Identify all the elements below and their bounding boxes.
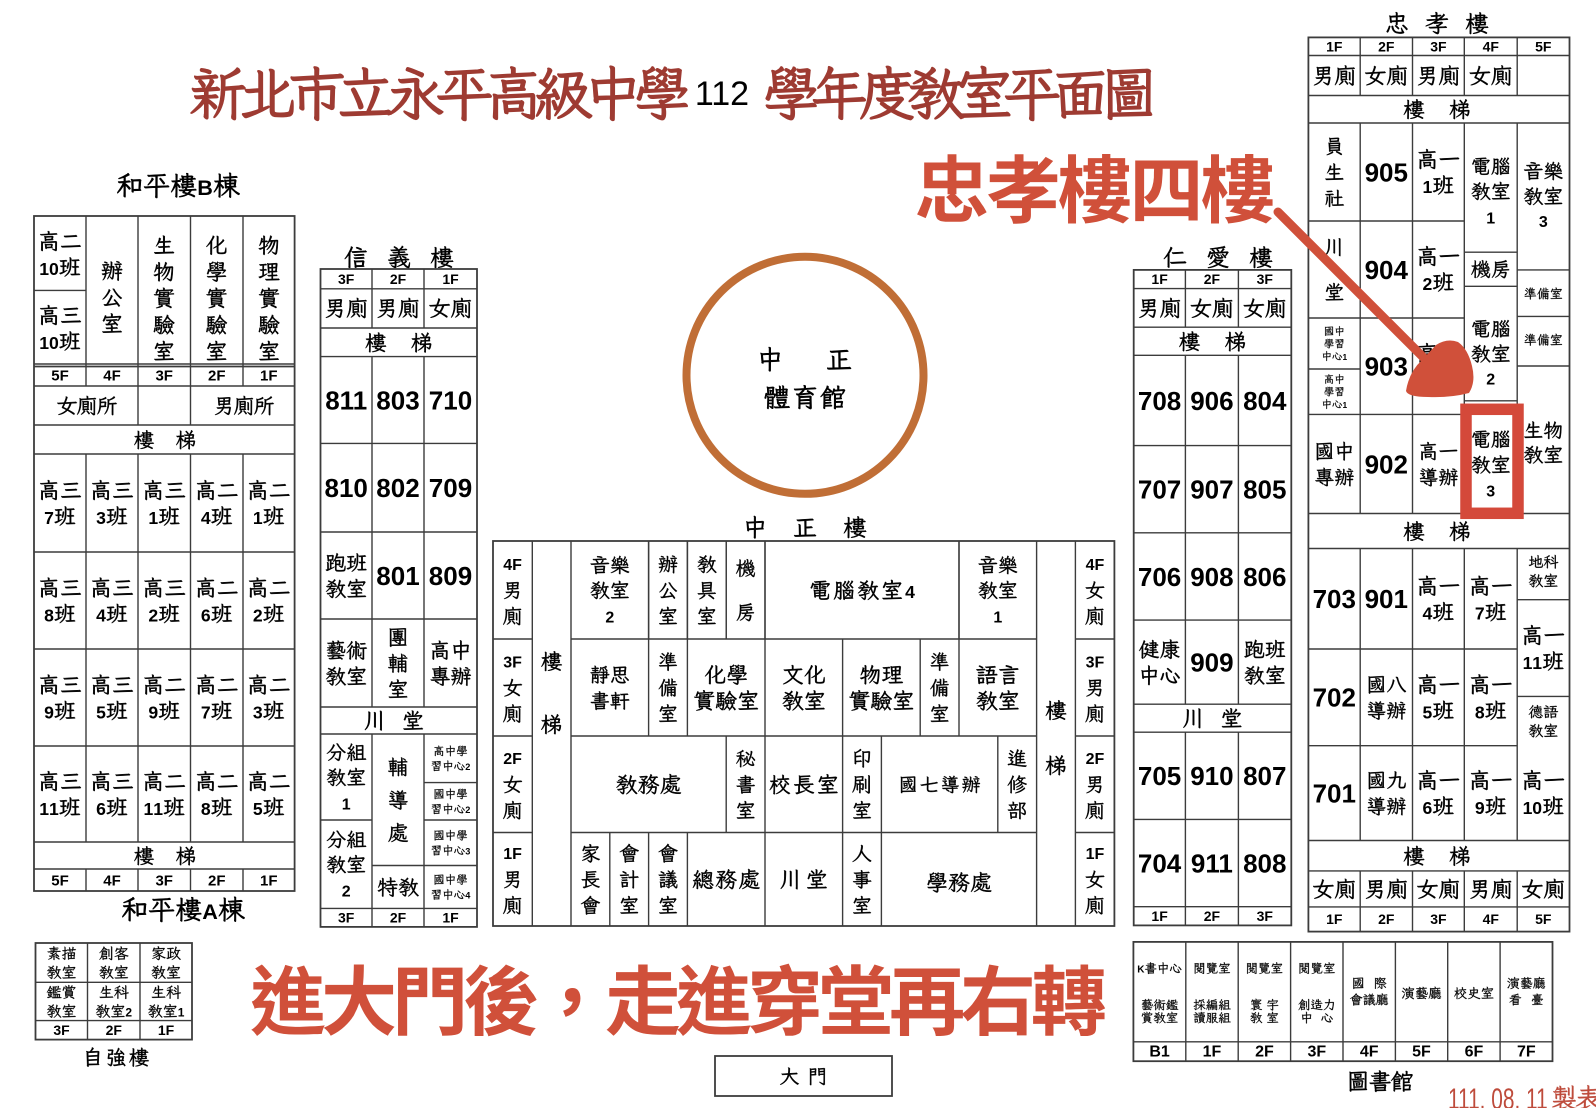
svg-text:1: 1 xyxy=(144,799,154,819)
svg-text:0: 0 xyxy=(49,333,59,353)
svg-text:1: 1 xyxy=(153,799,163,819)
svg-text:4: 4 xyxy=(465,891,471,901)
svg-text:1: 1 xyxy=(1343,400,1348,410)
svg-text:1: 1 xyxy=(49,799,59,819)
svg-text:4: 4 xyxy=(1423,604,1433,624)
svg-text:809: 809 xyxy=(429,561,472,591)
svg-text:2F: 2F xyxy=(1204,908,1221,924)
svg-text:2F: 2F xyxy=(503,751,522,768)
svg-text:1F: 1F xyxy=(1326,39,1343,55)
svg-text:5F: 5F xyxy=(51,367,69,384)
svg-text:903: 903 xyxy=(1365,352,1408,382)
svg-text:1F: 1F xyxy=(1326,911,1343,927)
svg-text:2F: 2F xyxy=(390,910,407,926)
svg-text:3F: 3F xyxy=(503,654,522,671)
svg-text:2: 2 xyxy=(605,609,614,626)
svg-text:705: 705 xyxy=(1138,761,1181,791)
svg-text:5F: 5F xyxy=(1412,1044,1431,1061)
svg-text:1: 1 xyxy=(178,1005,185,1019)
svg-text:910: 910 xyxy=(1190,761,1233,791)
svg-text:2: 2 xyxy=(1423,274,1433,294)
svg-text:2: 2 xyxy=(148,606,158,626)
svg-text:7: 7 xyxy=(44,508,54,528)
svg-text:4F: 4F xyxy=(1360,1044,1379,1061)
svg-text:1: 1 xyxy=(39,333,49,353)
svg-text:909: 909 xyxy=(1190,648,1233,678)
svg-text:2F: 2F xyxy=(390,271,407,287)
svg-text:3F: 3F xyxy=(155,872,173,889)
svg-text:902: 902 xyxy=(1365,449,1408,479)
svg-text:3F: 3F xyxy=(1430,39,1447,55)
svg-text:804: 804 xyxy=(1243,386,1287,416)
svg-text:1F: 1F xyxy=(260,367,278,384)
svg-text:2: 2 xyxy=(465,805,470,815)
svg-text:1F: 1F xyxy=(442,271,459,287)
svg-text:0: 0 xyxy=(1532,798,1542,818)
svg-text:907: 907 xyxy=(1190,475,1233,505)
svg-text:1F: 1F xyxy=(1151,271,1168,287)
svg-text:7: 7 xyxy=(1475,604,1485,624)
svg-text:707: 707 xyxy=(1138,475,1181,505)
svg-text:6F: 6F xyxy=(1465,1044,1484,1061)
svg-text:3F: 3F xyxy=(1257,908,1274,924)
svg-text:2: 2 xyxy=(465,762,470,772)
svg-text:1F: 1F xyxy=(1151,908,1168,924)
svg-text:706: 706 xyxy=(1138,562,1181,592)
svg-text:3F: 3F xyxy=(1430,911,1447,927)
svg-text:2F: 2F xyxy=(106,1022,123,1038)
svg-text:1: 1 xyxy=(1532,653,1542,673)
svg-text:2: 2 xyxy=(253,606,263,626)
svg-text:2F: 2F xyxy=(208,872,226,889)
svg-text:1: 1 xyxy=(1523,798,1533,818)
svg-text:801: 801 xyxy=(376,561,419,591)
svg-text:906: 906 xyxy=(1190,386,1233,416)
svg-text:709: 709 xyxy=(429,473,472,503)
svg-text:2: 2 xyxy=(342,884,351,901)
svg-text:1F: 1F xyxy=(158,1022,175,1038)
svg-text:904: 904 xyxy=(1365,255,1409,285)
svg-text:2: 2 xyxy=(125,1005,132,1019)
svg-text:2: 2 xyxy=(1486,371,1495,388)
svg-text:803: 803 xyxy=(376,385,419,415)
svg-text:8: 8 xyxy=(44,606,54,626)
svg-text:9: 9 xyxy=(44,703,54,723)
svg-text:4F: 4F xyxy=(503,557,522,574)
svg-text:1: 1 xyxy=(993,609,1002,626)
svg-text:5: 5 xyxy=(253,799,263,819)
svg-text:A: A xyxy=(202,899,218,924)
svg-text:806: 806 xyxy=(1243,562,1286,592)
svg-text:701: 701 xyxy=(1313,778,1356,808)
svg-text:8: 8 xyxy=(1475,702,1485,722)
svg-text:4F: 4F xyxy=(1483,39,1500,55)
svg-text:1: 1 xyxy=(1343,352,1348,362)
svg-text:112: 112 xyxy=(695,75,749,113)
svg-text:1: 1 xyxy=(1523,653,1533,673)
svg-text:4F: 4F xyxy=(103,367,121,384)
svg-text:9: 9 xyxy=(1475,798,1485,818)
svg-text:4F: 4F xyxy=(103,872,121,889)
svg-text:1F: 1F xyxy=(260,872,278,889)
svg-text:2F: 2F xyxy=(1255,1044,1274,1061)
svg-text:4F: 4F xyxy=(1086,557,1105,574)
svg-text:3F: 3F xyxy=(1307,1044,1326,1061)
svg-text:807: 807 xyxy=(1243,761,1286,791)
svg-text:9: 9 xyxy=(148,703,158,723)
svg-text:6: 6 xyxy=(201,606,211,626)
svg-text:7: 7 xyxy=(201,703,211,723)
svg-text:905: 905 xyxy=(1365,157,1408,187)
svg-text:703: 703 xyxy=(1313,584,1356,614)
svg-text:5F: 5F xyxy=(1535,39,1552,55)
svg-text:3F: 3F xyxy=(155,367,173,384)
svg-text:K: K xyxy=(1137,965,1145,976)
svg-text:2F: 2F xyxy=(208,367,226,384)
svg-text:3F: 3F xyxy=(1257,271,1274,287)
svg-text:901: 901 xyxy=(1365,584,1408,614)
svg-text:3: 3 xyxy=(96,508,106,528)
svg-text:1F: 1F xyxy=(1086,846,1105,863)
svg-text:1F: 1F xyxy=(1203,1044,1222,1061)
svg-text:6: 6 xyxy=(1423,798,1433,818)
svg-text:811: 811 xyxy=(325,385,367,415)
svg-text:911: 911 xyxy=(1191,848,1233,878)
svg-text:4: 4 xyxy=(96,606,106,626)
svg-text:3: 3 xyxy=(465,846,470,856)
svg-text:805: 805 xyxy=(1243,475,1286,505)
svg-text:3F: 3F xyxy=(1086,654,1105,671)
svg-text:8: 8 xyxy=(201,799,211,819)
svg-text:908: 908 xyxy=(1190,562,1233,592)
svg-text:2F: 2F xyxy=(1378,39,1395,55)
svg-text:4F: 4F xyxy=(1483,911,1500,927)
svg-text:1: 1 xyxy=(1486,210,1495,227)
svg-text:708: 708 xyxy=(1138,386,1181,416)
svg-text:1F: 1F xyxy=(442,910,459,926)
svg-text:B: B xyxy=(197,175,213,200)
svg-text:2F: 2F xyxy=(1086,751,1105,768)
svg-text:6: 6 xyxy=(96,799,106,819)
svg-text:3: 3 xyxy=(253,703,263,723)
svg-text:1: 1 xyxy=(253,508,263,528)
svg-text:810: 810 xyxy=(325,473,368,503)
svg-text:1: 1 xyxy=(39,259,49,279)
svg-text:1: 1 xyxy=(148,508,158,528)
svg-text:5: 5 xyxy=(1423,702,1433,722)
svg-text:111. 08. 11: 111. 08. 11 xyxy=(1448,1083,1548,1108)
svg-text:1: 1 xyxy=(39,799,49,819)
svg-text:808: 808 xyxy=(1243,848,1286,878)
svg-text:5: 5 xyxy=(96,703,106,723)
svg-text:2F: 2F xyxy=(1204,271,1221,287)
svg-text:4: 4 xyxy=(201,508,211,528)
svg-text:1: 1 xyxy=(1423,177,1433,197)
svg-text:710: 710 xyxy=(429,385,472,415)
svg-text:5F: 5F xyxy=(1535,911,1552,927)
svg-text:B1: B1 xyxy=(1149,1044,1170,1061)
svg-text:1: 1 xyxy=(342,796,351,813)
svg-text:7F: 7F xyxy=(1517,1044,1536,1061)
svg-text:702: 702 xyxy=(1313,683,1356,713)
svg-text:3F: 3F xyxy=(338,910,355,926)
svg-text:4: 4 xyxy=(905,582,915,602)
svg-text:3F: 3F xyxy=(53,1022,70,1038)
svg-text:3: 3 xyxy=(1486,483,1495,500)
svg-text:2F: 2F xyxy=(1378,911,1395,927)
svg-text:0: 0 xyxy=(49,259,59,279)
svg-text:5F: 5F xyxy=(51,872,69,889)
svg-text:802: 802 xyxy=(376,473,419,503)
svg-text:1F: 1F xyxy=(503,846,522,863)
svg-text:3F: 3F xyxy=(338,271,355,287)
svg-text:704: 704 xyxy=(1138,848,1182,878)
svg-text:3: 3 xyxy=(1539,214,1548,231)
